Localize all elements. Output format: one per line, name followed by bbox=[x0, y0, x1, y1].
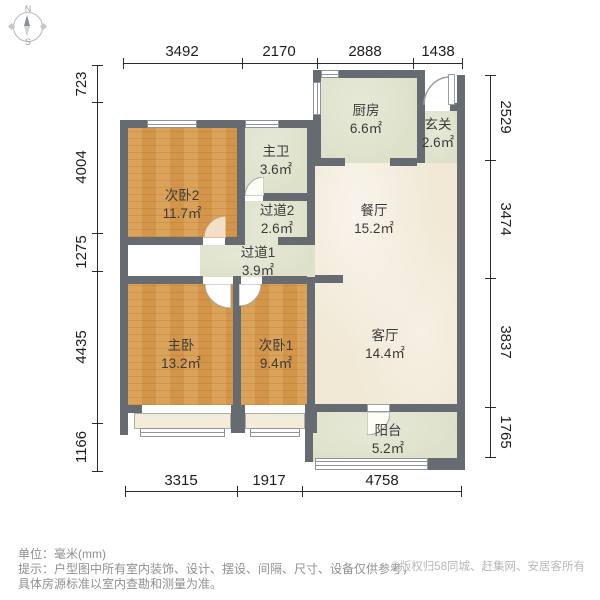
room-area: 13.2㎡ bbox=[136, 355, 226, 373]
dim-line-bottom bbox=[125, 491, 462, 492]
wall-segment bbox=[120, 405, 142, 413]
dim-left-1: 723 bbox=[74, 44, 90, 124]
wall-segment bbox=[128, 237, 203, 245]
dim-tick bbox=[92, 102, 103, 103]
floor-dining-living bbox=[315, 163, 457, 404]
dim-line-right bbox=[490, 75, 491, 458]
wall-segment bbox=[315, 275, 343, 283]
bay-window bbox=[245, 413, 305, 429]
entry-door-leaf bbox=[448, 74, 455, 105]
dim-tick bbox=[461, 486, 462, 497]
dim-tick bbox=[92, 233, 103, 234]
compass-icon: N S bbox=[8, 6, 48, 46]
room-name: 过道2 bbox=[232, 202, 322, 220]
copyright-note: ©版权归58同城、赶集网、安居客所有 bbox=[335, 558, 585, 574]
room-name: 阳台 bbox=[343, 422, 433, 440]
wall-segment bbox=[231, 405, 245, 433]
dim-tick bbox=[92, 65, 103, 66]
room-label-balcony: 阳台 5.2㎡ bbox=[343, 422, 433, 458]
room-label-hallway1: 过道1 3.9㎡ bbox=[213, 244, 303, 280]
window bbox=[250, 428, 300, 437]
bay-window bbox=[134, 413, 231, 429]
window bbox=[245, 120, 279, 128]
dim-left-3: 1275 bbox=[74, 212, 90, 292]
wall-segment bbox=[263, 193, 307, 201]
dim-top-3: 2888 bbox=[325, 44, 405, 60]
dim-bottom-2: 1917 bbox=[229, 473, 309, 489]
room-label-master-bath: 主卫 3.6㎡ bbox=[231, 143, 321, 179]
dim-tick bbox=[92, 471, 103, 472]
bath-door-arc bbox=[245, 177, 264, 196]
unit-note: 单位：毫米(mm) bbox=[18, 547, 106, 562]
dim-left-2: 4004 bbox=[74, 127, 90, 207]
dim-tick bbox=[485, 457, 496, 458]
dim-top-1: 3492 bbox=[142, 44, 222, 60]
dim-right-2: 3474 bbox=[497, 179, 513, 259]
dim-tick bbox=[485, 407, 496, 408]
dim-bottom-1: 3315 bbox=[141, 473, 221, 489]
wall-segment bbox=[120, 413, 128, 435]
floorplan-page: N S 3492 2170 2888 1438 723 4004 1275 44… bbox=[0, 0, 600, 600]
room-area: 5.2㎡ bbox=[343, 440, 433, 458]
wall-segment bbox=[390, 404, 457, 412]
dim-tick bbox=[92, 271, 103, 272]
dim-left-5: 1166 bbox=[74, 407, 90, 487]
dim-right-1: 2529 bbox=[497, 77, 513, 157]
room-area: 9.4㎡ bbox=[231, 355, 321, 373]
room-label-dining: 餐厅 15.2㎡ bbox=[329, 202, 419, 238]
dim-top-2: 2170 bbox=[239, 44, 319, 60]
room-label-bedroom2: 次卧2 11.7㎡ bbox=[137, 187, 227, 223]
room-name: 餐厅 bbox=[329, 202, 419, 220]
dim-tick bbox=[485, 278, 496, 279]
dim-tick bbox=[125, 486, 126, 497]
window bbox=[147, 120, 197, 128]
window bbox=[315, 458, 428, 470]
window bbox=[321, 70, 339, 78]
window bbox=[313, 82, 321, 115]
room-label-hallway2: 过道2 2.6㎡ bbox=[232, 202, 322, 238]
master-door-arc bbox=[205, 284, 231, 308]
dim-top-4: 1438 bbox=[398, 44, 478, 60]
wall-segment bbox=[128, 276, 203, 284]
dim-tick bbox=[92, 423, 103, 424]
room-name: 主卧 bbox=[136, 337, 226, 355]
dim-tick bbox=[485, 160, 496, 161]
room-name: 主卫 bbox=[231, 143, 321, 161]
room-label-living: 客厅 14.4㎡ bbox=[340, 327, 430, 363]
room-name: 客厅 bbox=[340, 327, 430, 345]
dim-line-left bbox=[97, 65, 98, 472]
window bbox=[140, 428, 225, 437]
dim-line-top bbox=[123, 63, 463, 64]
compass-needle-north bbox=[24, 15, 30, 26]
dim-bottom-3: 4758 bbox=[342, 473, 422, 489]
room-area: 2.6㎡ bbox=[393, 134, 483, 152]
room-name: 玄关 bbox=[393, 116, 483, 134]
balcony-door-leaf bbox=[367, 404, 390, 412]
compass-north-label: N bbox=[8, 5, 48, 14]
dim-left-4: 4435 bbox=[74, 307, 90, 387]
compass-needle-south bbox=[24, 26, 30, 37]
dim-tick bbox=[123, 58, 124, 69]
dim-right-3: 3837 bbox=[497, 302, 513, 382]
room-area: 11.7㎡ bbox=[137, 205, 227, 223]
room-area: 3.9㎡ bbox=[213, 262, 303, 280]
room-label-entry: 玄关 2.6㎡ bbox=[393, 116, 483, 152]
room-label-bedroom1: 次卧1 9.4㎡ bbox=[231, 337, 321, 373]
room-area: 2.6㎡ bbox=[232, 220, 322, 238]
room-name: 次卧2 bbox=[137, 187, 227, 205]
wall-segment bbox=[390, 158, 417, 166]
wall-segment bbox=[305, 405, 317, 433]
disclaimer-line2: 具体房源标准以室内查勘和测量为准。 bbox=[18, 577, 222, 592]
dim-tick bbox=[485, 75, 496, 76]
compass-south-label: S bbox=[8, 38, 48, 47]
room-name: 过道1 bbox=[213, 244, 303, 262]
bedroom1-door-arc bbox=[239, 284, 261, 306]
wall-segment bbox=[120, 120, 128, 413]
dim-right-4: 1765 bbox=[497, 392, 513, 472]
room-name: 次卧1 bbox=[231, 337, 321, 355]
room-area: 15.2㎡ bbox=[329, 220, 419, 238]
room-area: 14.4㎡ bbox=[340, 345, 430, 363]
room-area: 3.6㎡ bbox=[231, 161, 321, 179]
room-label-master-bedroom: 主卧 13.2㎡ bbox=[136, 337, 226, 373]
wall-segment bbox=[428, 458, 465, 470]
